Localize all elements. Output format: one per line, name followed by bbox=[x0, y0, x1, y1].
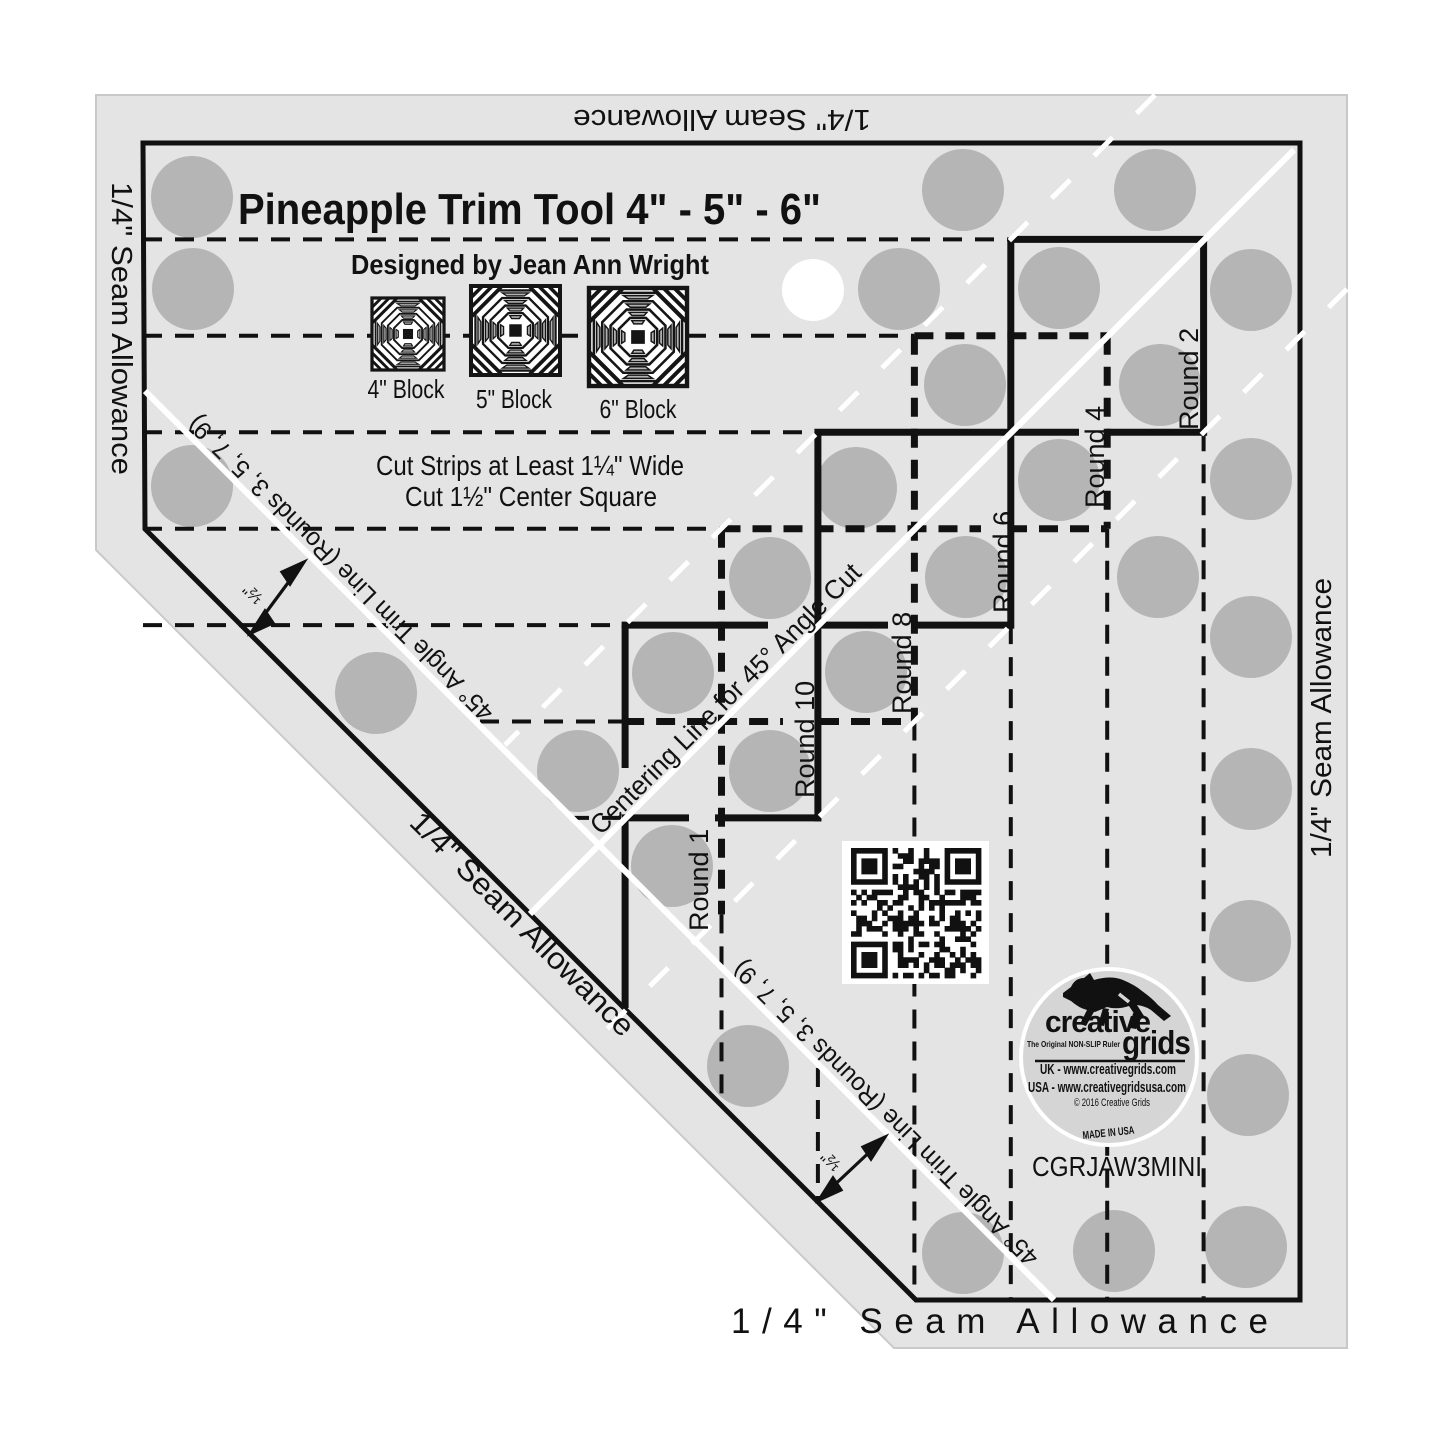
svg-text:The Original NON-SLIP Ruler: The Original NON-SLIP Ruler bbox=[1027, 1039, 1121, 1049]
svg-text:Cut Strips at Least 1¼" Wide: Cut Strips at Least 1¼" Wide bbox=[376, 450, 684, 481]
svg-text:5" Block: 5" Block bbox=[476, 384, 553, 414]
svg-text:Round 2: Round 2 bbox=[1174, 328, 1204, 430]
svg-text:4" Block: 4" Block bbox=[368, 374, 446, 404]
svg-text:1/4" Seam Allowance: 1/4" Seam Allowance bbox=[105, 182, 137, 475]
svg-text:Round 4: Round 4 bbox=[1080, 406, 1110, 508]
svg-text:Designed by Jean Ann Wright: Designed by Jean Ann Wright bbox=[351, 249, 709, 280]
svg-text:1/4" Seam Allowance: 1/4" Seam Allowance bbox=[573, 103, 871, 135]
svg-text:1/4" Seam Allowance: 1/4" Seam Allowance bbox=[1306, 578, 1338, 858]
svg-text:Pineapple Trim Tool 4" - 5" -: Pineapple Trim Tool 4" - 5" - 6" bbox=[238, 185, 821, 234]
svg-text:UK - www.creativegrids.com: UK - www.creativegrids.com bbox=[1040, 1062, 1176, 1078]
svg-text:© 2016 Creative Grids: © 2016 Creative Grids bbox=[1074, 1097, 1150, 1109]
svg-text:CGRJAW3MINI: CGRJAW3MINI bbox=[1032, 1151, 1202, 1182]
svg-text:Round 10: Round 10 bbox=[790, 681, 820, 798]
svg-text:Round 8: Round 8 bbox=[887, 612, 917, 714]
svg-text:6" Block: 6" Block bbox=[600, 394, 678, 424]
svg-text:Round 1: Round 1 bbox=[684, 829, 714, 931]
svg-text:grids: grids bbox=[1122, 1024, 1190, 1061]
svg-text:USA - www.creativegridsusa.com: USA - www.creativegridsusa.com bbox=[1028, 1080, 1186, 1096]
svg-text:Cut 1½" Center Square: Cut 1½" Center Square bbox=[405, 481, 657, 512]
svg-text:Round 6: Round 6 bbox=[988, 511, 1018, 613]
